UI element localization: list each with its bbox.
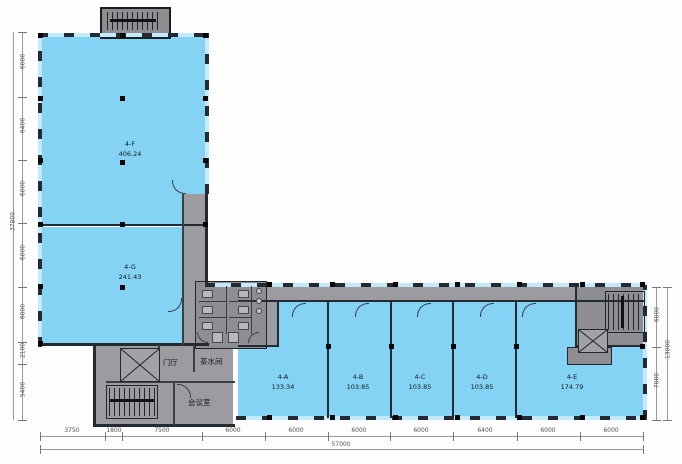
column-marker	[38, 341, 43, 346]
meeting-label: 会议室	[188, 397, 211, 408]
sink-icon	[256, 298, 262, 304]
dim-left-total: 37800	[10, 211, 17, 233]
column-marker	[640, 282, 645, 287]
column-marker	[38, 33, 43, 38]
pantry-label: 茶水间	[200, 356, 223, 367]
dim-left-4: 6000	[20, 303, 27, 321]
toilet-fixture	[212, 332, 223, 343]
dim-bottom-total: 57000	[321, 441, 361, 448]
left-dim-line	[22, 32, 23, 420]
dim-left-6: 5400	[20, 381, 27, 399]
room-label-4c: 4-C103.85	[390, 372, 450, 393]
corridor-room-wall	[238, 300, 645, 302]
column-marker	[580, 415, 585, 420]
divider-4a-4b	[327, 302, 329, 418]
dim-right-total: 13000	[665, 339, 672, 361]
lobby-wall-d	[173, 383, 175, 425]
column-marker	[330, 415, 335, 420]
column-marker	[120, 96, 125, 101]
wing-right-wall-lower	[205, 194, 208, 287]
toilet-stalls-left	[199, 286, 227, 334]
toilet-fixture	[228, 332, 239, 343]
dim-left-3: 6000	[20, 244, 27, 262]
elevator-icon	[120, 348, 160, 382]
column-marker	[120, 33, 125, 38]
dim-bottom-8: 6000	[528, 427, 568, 434]
dim-left-1: 6400	[20, 117, 27, 135]
column-marker	[203, 33, 208, 38]
dim-bottom-7: 6400	[465, 427, 505, 434]
stair-icon	[106, 385, 158, 419]
dim-left-2: 6000	[20, 180, 27, 198]
room-label-4a: 4-A133.34	[253, 372, 313, 393]
column-marker	[580, 282, 585, 287]
room-label-4g: 4-G241.43	[100, 262, 160, 283]
column-marker	[203, 222, 208, 227]
room-label-4f: 4-F406.24	[100, 139, 160, 160]
dim-left-5: 2100	[20, 342, 27, 360]
dim-bottom-5: 6000	[339, 427, 379, 434]
column-marker	[326, 344, 331, 349]
column-marker	[120, 285, 125, 290]
column-marker	[455, 415, 460, 420]
wing-right-wall-upper	[205, 33, 209, 194]
column-marker	[267, 282, 272, 287]
bottom-dim-total-line	[40, 449, 643, 450]
notch-bottom-wall	[238, 345, 279, 347]
dim-bottom-3: 6000	[213, 427, 253, 434]
column-marker	[517, 415, 522, 420]
lobby-left-wall	[93, 345, 96, 427]
dim-bottom-9: 6000	[591, 427, 631, 434]
column-marker	[640, 415, 645, 420]
dim-bottom-4: 6000	[276, 427, 316, 434]
divider-4c-4d	[452, 302, 454, 418]
divider-4d-4e	[515, 302, 517, 418]
wing-left-wall	[38, 33, 42, 347]
column-marker	[393, 282, 398, 287]
column-marker	[451, 344, 456, 349]
floor-plan: 4-F406.24 4-G241.43 4-A133.34 4-B103.85 …	[0, 0, 682, 464]
column-marker	[330, 282, 335, 287]
stair-rail	[110, 19, 156, 22]
sink-icon	[256, 308, 262, 314]
column-marker	[389, 344, 394, 349]
column-marker	[517, 282, 522, 287]
column-marker	[38, 284, 43, 289]
dim-bottom-1: 1800	[96, 427, 132, 434]
stair-icon	[605, 291, 645, 333]
room-label-4e: 4-E174.79	[542, 372, 602, 393]
column-marker	[393, 415, 398, 420]
divider-4b-4c	[390, 302, 392, 418]
column-marker	[38, 222, 43, 227]
south-wing-bottom-wall	[236, 416, 647, 420]
column-marker	[120, 160, 125, 165]
lobby-label: 门厅	[163, 357, 178, 368]
column-marker	[455, 282, 460, 287]
column-marker	[203, 158, 208, 163]
room-label-4b: 4-B103.85	[328, 372, 388, 393]
column-marker	[38, 158, 43, 163]
toilet-stalls-right	[229, 286, 252, 334]
column-marker	[267, 415, 272, 420]
column-marker	[514, 344, 519, 349]
dim-bottom-2: 7500	[142, 427, 182, 434]
notch-right-wall	[277, 302, 279, 347]
column-marker	[203, 96, 208, 101]
column-marker	[640, 344, 645, 349]
column-marker	[38, 96, 43, 101]
dim-left-0: 6000	[20, 53, 27, 71]
lobby-wall-b	[193, 345, 195, 372]
dim-bottom-6: 6000	[401, 427, 441, 434]
core-left-wall	[575, 287, 577, 347]
elevator-icon	[578, 329, 608, 353]
room-label-4d: 4-D103.85	[452, 372, 512, 393]
dim-right-1: 7000	[654, 372, 661, 390]
dim-bottom-0: 3750	[52, 427, 92, 434]
sink-icon	[256, 288, 262, 294]
column-marker	[120, 222, 125, 227]
dim-right-0: 6000	[654, 306, 661, 324]
corridor-left-wall	[182, 194, 184, 345]
bottom-dim-line	[40, 436, 643, 437]
